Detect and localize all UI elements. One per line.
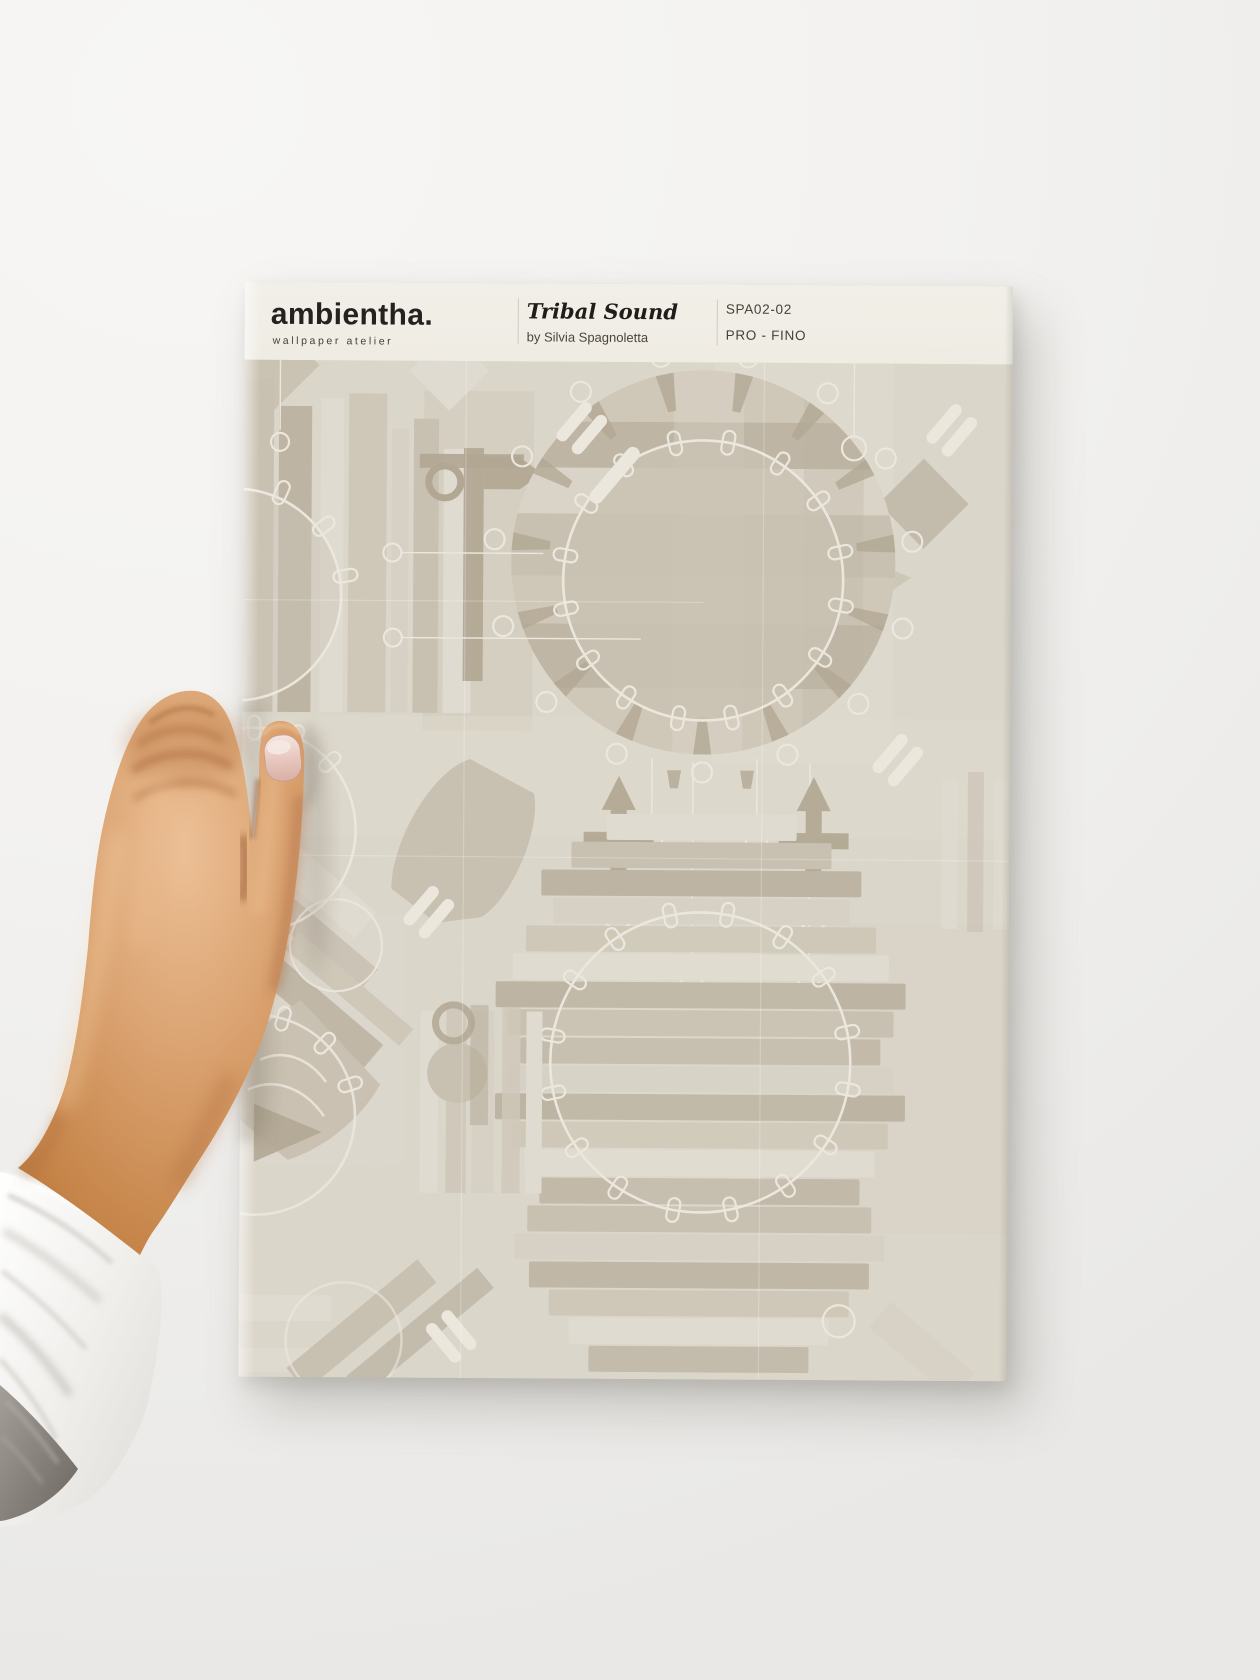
- header-divider: [518, 298, 519, 344]
- wallpaper-pattern: [238, 360, 1012, 1382]
- brand-logo: ambientha.: [271, 298, 434, 333]
- hand-holding-sheet: [0, 595, 340, 1560]
- wallpaper-sample-sheet: ambientha. wallpaper atelier Tribal Soun…: [238, 282, 1013, 1382]
- sample-header: ambientha. wallpaper atelier Tribal Soun…: [245, 282, 1013, 365]
- hand-arm: [18, 691, 304, 1255]
- brand-tagline: wallpaper atelier: [273, 335, 394, 348]
- photo-scene: ambientha. wallpaper atelier Tribal Soun…: [0, 0, 1260, 1680]
- header-divider: [717, 300, 718, 346]
- sample-grade: PRO - FINO: [726, 328, 807, 343]
- xylophone-motif: [493, 775, 907, 1373]
- pattern-title: Tribal Sound: [527, 298, 678, 324]
- sample-code: SPA02-02: [726, 302, 792, 317]
- pattern-author: by Silvia Spagnoletta: [527, 329, 649, 345]
